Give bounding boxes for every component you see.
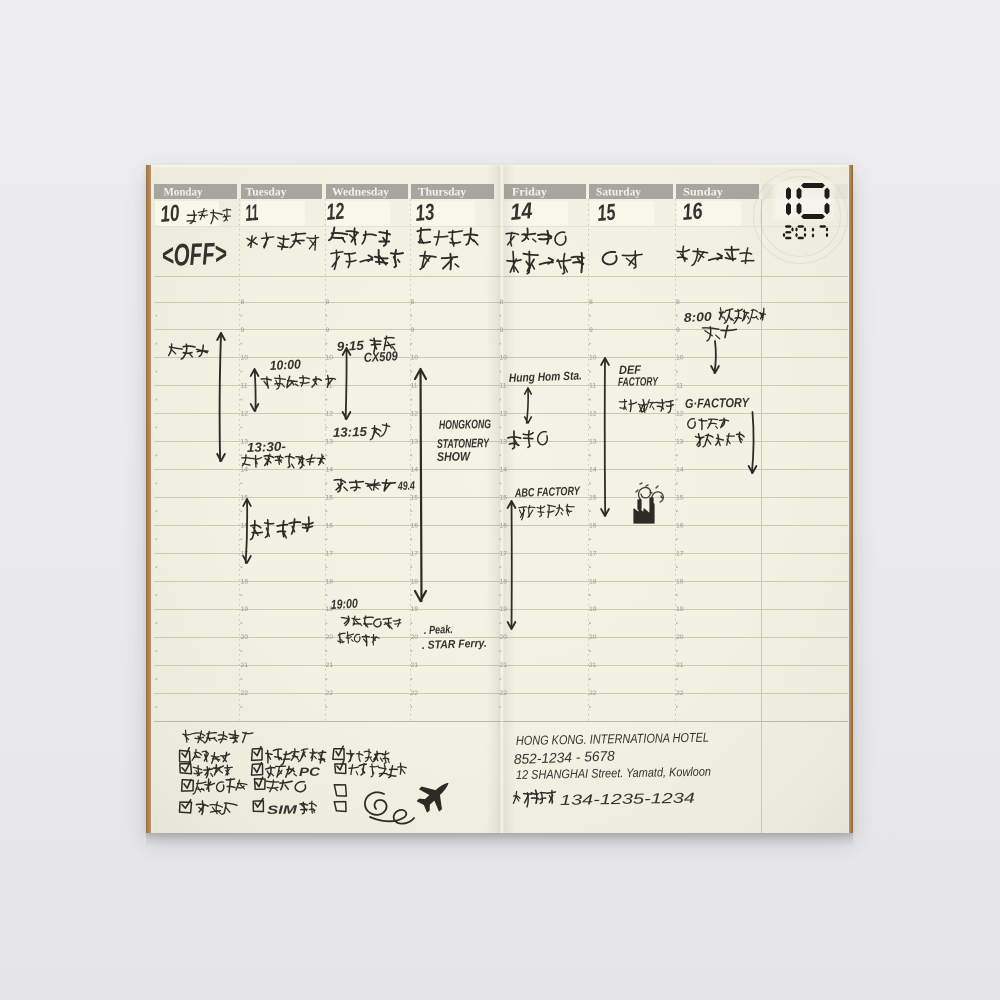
svg-text:PC: PC bbox=[299, 765, 321, 779]
svg-text:15: 15 bbox=[411, 494, 419, 501]
svg-text:14: 14 bbox=[411, 467, 419, 474]
svg-text:13:15: 13:15 bbox=[333, 424, 368, 440]
svg-text:G·FACTORY: G·FACTORY bbox=[685, 395, 750, 411]
svg-text:14: 14 bbox=[241, 467, 249, 474]
svg-text:Wednesday: Wednesday bbox=[332, 185, 389, 199]
svg-text:13: 13 bbox=[676, 439, 684, 446]
svg-text:21: 21 bbox=[326, 662, 334, 669]
svg-text:18: 18 bbox=[500, 578, 508, 585]
svg-text:12: 12 bbox=[241, 411, 249, 418]
svg-text:9: 9 bbox=[326, 327, 330, 334]
svg-text:Thursday: Thursday bbox=[418, 185, 466, 199]
svg-text:16: 16 bbox=[589, 522, 597, 529]
svg-text:9: 9 bbox=[500, 327, 504, 334]
svg-text:16: 16 bbox=[500, 522, 508, 529]
svg-text:8: 8 bbox=[241, 299, 245, 306]
svg-text:16: 16 bbox=[411, 522, 419, 529]
svg-text:CX509: CX509 bbox=[363, 348, 398, 365]
svg-text:19: 19 bbox=[500, 606, 508, 613]
svg-text:20: 20 bbox=[411, 634, 419, 641]
svg-text:11: 11 bbox=[676, 383, 683, 390]
svg-text:852-1234 - 5678: 852-1234 - 5678 bbox=[514, 747, 616, 767]
svg-text:13: 13 bbox=[411, 439, 419, 446]
svg-text:8: 8 bbox=[326, 299, 330, 306]
svg-text:15: 15 bbox=[500, 494, 508, 501]
svg-text:Monday: Monday bbox=[164, 185, 203, 199]
svg-text:19: 19 bbox=[241, 606, 249, 613]
svg-text:11: 11 bbox=[589, 383, 596, 390]
svg-text:17: 17 bbox=[500, 550, 508, 557]
svg-text:18: 18 bbox=[676, 578, 684, 585]
svg-text:21: 21 bbox=[589, 662, 597, 669]
svg-text:22: 22 bbox=[326, 690, 334, 697]
svg-text:FACTORY: FACTORY bbox=[618, 374, 659, 389]
svg-text:14: 14 bbox=[326, 467, 334, 474]
svg-text:11: 11 bbox=[411, 383, 418, 390]
svg-text:8: 8 bbox=[500, 299, 504, 306]
svg-text:15: 15 bbox=[326, 494, 334, 501]
svg-text:17: 17 bbox=[411, 550, 419, 557]
svg-text:12: 12 bbox=[411, 411, 419, 418]
svg-text:ABC FACTORY: ABC FACTORY bbox=[514, 484, 581, 500]
svg-text:22: 22 bbox=[500, 690, 508, 697]
svg-text:9: 9 bbox=[411, 327, 415, 334]
svg-text:18: 18 bbox=[411, 578, 419, 585]
svg-text:13:30-: 13:30- bbox=[247, 439, 286, 455]
svg-text:134-1235-1234: 134-1235-1234 bbox=[560, 791, 695, 809]
svg-text:<OFF>: <OFF> bbox=[161, 236, 227, 273]
svg-text:13: 13 bbox=[589, 439, 597, 446]
svg-text:HONG KONG. INTERNATIONA HOTEL: HONG KONG. INTERNATIONA HOTEL bbox=[516, 730, 709, 748]
svg-text:15: 15 bbox=[596, 198, 617, 226]
svg-text:8:00: 8:00 bbox=[683, 310, 712, 325]
svg-text:17: 17 bbox=[326, 550, 334, 557]
svg-text:. Peak.: . Peak. bbox=[424, 624, 453, 637]
svg-text:14: 14 bbox=[509, 197, 533, 225]
svg-text:15: 15 bbox=[589, 494, 597, 501]
svg-text:20: 20 bbox=[500, 634, 508, 641]
svg-text:20: 20 bbox=[241, 634, 249, 641]
svg-text:15: 15 bbox=[676, 494, 684, 501]
svg-text:SIM: SIM bbox=[267, 802, 299, 817]
svg-text:Saturday: Saturday bbox=[596, 185, 641, 199]
svg-text:9: 9 bbox=[589, 327, 593, 334]
svg-text:11: 11 bbox=[244, 199, 259, 226]
svg-text:16: 16 bbox=[681, 197, 703, 225]
svg-text:14: 14 bbox=[676, 467, 684, 474]
svg-text:10: 10 bbox=[326, 355, 334, 362]
svg-text:10: 10 bbox=[589, 355, 597, 362]
svg-text:20: 20 bbox=[676, 634, 684, 641]
svg-text:21: 21 bbox=[411, 662, 419, 669]
svg-text:22: 22 bbox=[589, 690, 597, 697]
svg-text:19: 19 bbox=[589, 606, 597, 613]
svg-text:10: 10 bbox=[500, 355, 508, 362]
svg-text:16: 16 bbox=[326, 522, 334, 529]
svg-text:10: 10 bbox=[411, 355, 419, 362]
svg-text:22: 22 bbox=[411, 690, 419, 697]
svg-text:10: 10 bbox=[676, 355, 684, 362]
svg-text:18: 18 bbox=[589, 578, 597, 585]
svg-text:Sunday: Sunday bbox=[683, 185, 723, 199]
svg-text:13: 13 bbox=[500, 439, 508, 446]
svg-text:12: 12 bbox=[325, 197, 345, 224]
svg-text:11: 11 bbox=[500, 383, 507, 390]
svg-text:19: 19 bbox=[411, 606, 419, 613]
svg-text:HONGKONG: HONGKONG bbox=[439, 417, 491, 432]
svg-text:20: 20 bbox=[326, 634, 334, 641]
svg-text:10:00: 10:00 bbox=[269, 356, 301, 373]
svg-text:Hung Hom Sta.: Hung Hom Sta. bbox=[509, 368, 582, 385]
svg-text:. STAR Ferry.: . STAR Ferry. bbox=[422, 638, 487, 652]
svg-text:10: 10 bbox=[241, 355, 249, 362]
svg-text:14: 14 bbox=[500, 467, 508, 474]
svg-text:8: 8 bbox=[589, 299, 593, 306]
svg-text:22: 22 bbox=[241, 690, 249, 697]
svg-text:9: 9 bbox=[241, 327, 245, 334]
svg-text:14: 14 bbox=[589, 467, 597, 474]
svg-text:SHOW: SHOW bbox=[437, 449, 471, 464]
svg-text:49.4: 49.4 bbox=[397, 478, 415, 493]
svg-text:12: 12 bbox=[326, 411, 334, 418]
svg-text:19:00: 19:00 bbox=[330, 596, 358, 612]
svg-text:21: 21 bbox=[676, 662, 684, 669]
svg-text:21: 21 bbox=[500, 662, 508, 669]
svg-text:10: 10 bbox=[159, 199, 180, 227]
svg-text:12: 12 bbox=[676, 411, 684, 418]
svg-text:Tuesday: Tuesday bbox=[246, 185, 287, 199]
svg-text:16: 16 bbox=[676, 522, 684, 529]
svg-text:13: 13 bbox=[414, 198, 435, 226]
svg-text:12: 12 bbox=[500, 411, 508, 418]
svg-text:12: 12 bbox=[589, 411, 597, 418]
svg-text:12 SHANGHAI Street. Yamatd, Ko: 12 SHANGHAI Street. Yamatd, Kowloon bbox=[516, 765, 711, 782]
svg-text:22: 22 bbox=[676, 690, 684, 697]
svg-text:18: 18 bbox=[326, 578, 334, 585]
svg-text:17: 17 bbox=[589, 550, 597, 557]
svg-text:21: 21 bbox=[241, 662, 249, 669]
svg-text:8: 8 bbox=[411, 299, 415, 306]
svg-text:9:15: 9:15 bbox=[336, 338, 365, 354]
svg-text:20: 20 bbox=[589, 634, 597, 641]
svg-text:17: 17 bbox=[676, 550, 684, 557]
svg-text:8: 8 bbox=[676, 299, 680, 306]
svg-text:11: 11 bbox=[241, 383, 248, 390]
svg-text:18: 18 bbox=[241, 578, 249, 585]
svg-text:19: 19 bbox=[676, 606, 684, 613]
svg-text:9: 9 bbox=[676, 327, 680, 334]
